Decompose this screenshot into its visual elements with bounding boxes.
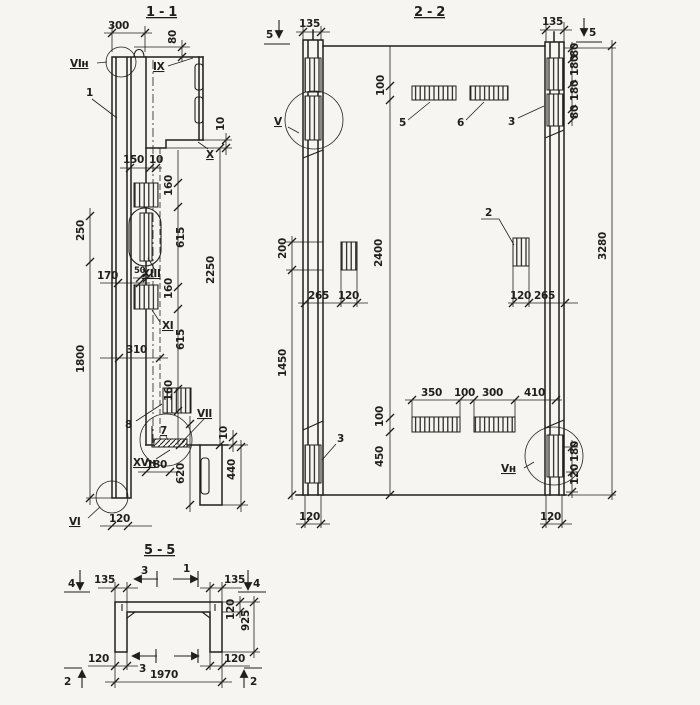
dim-180: 180 (146, 459, 167, 471)
label-3-bottom: 3 (337, 433, 344, 445)
label-XI: XI (162, 320, 173, 332)
label-2: 2 (485, 207, 492, 219)
dim-135-left: 135 (94, 574, 115, 586)
label-8: 8 (125, 419, 132, 431)
dim-450: 450 (374, 446, 386, 467)
dim-1970: 1970 (150, 669, 178, 681)
label-V: V (274, 116, 283, 128)
dim-180: 180 (569, 80, 581, 101)
dim-120-wall-right: 120 (224, 653, 245, 665)
dim-170: 170 (97, 270, 118, 282)
embed-plate-3 (305, 445, 321, 483)
cut-mark-2-left: 2 (64, 676, 71, 688)
label-VI: VI (69, 516, 80, 528)
embed-plate (547, 435, 563, 477)
cut-mark-5-right: 5 (589, 27, 596, 39)
dim-160: 160 (163, 278, 175, 299)
cut-mark-5-left: 5 (266, 29, 273, 41)
embed-plate-6 (470, 86, 508, 100)
dim-100: 100 (454, 387, 475, 399)
dim-300: 300 (108, 20, 129, 32)
label-VIn: VIн (70, 58, 88, 70)
embed-plate (140, 213, 152, 261)
dim-180-bottom: 180 (569, 441, 581, 462)
dim-100-top: 100 (375, 75, 387, 96)
label-X: X (206, 149, 214, 161)
dim-10-bracket: 10 (218, 426, 230, 440)
dim-2400: 2400 (373, 239, 385, 267)
dim-120: 120 (510, 290, 531, 302)
bar-mark-1: 1 (183, 563, 190, 575)
dim-10-step: 10 (215, 117, 227, 131)
dim-120: 120 (338, 290, 359, 302)
cut-mark-4-left: 4 (68, 578, 75, 590)
dim-120: 120 (109, 513, 130, 525)
dim-120-bottom-left: 120 (299, 511, 320, 523)
bar-mark-3-top: 3 (141, 565, 148, 577)
dim-300: 300 (482, 387, 503, 399)
embed-plate (341, 242, 357, 270)
dim-120-bottom-right: 120 (540, 511, 561, 523)
dim-180: 180 (569, 55, 581, 76)
dim-615: 615 (175, 227, 187, 248)
section-2-2-title: 2 - 2 (414, 5, 445, 20)
paper-background (0, 0, 700, 700)
dim-150: 150 (123, 154, 144, 166)
embed-plate (134, 285, 158, 309)
dim-135-left: 135 (299, 18, 320, 30)
dim-160: 160 (163, 380, 175, 401)
dim-100-bottom: 100 (374, 406, 386, 427)
dim-135-right: 135 (224, 574, 245, 586)
dim-1800: 1800 (75, 345, 87, 373)
dim-80: 80 (167, 30, 179, 44)
section-1-1-title: 1 - 1 (146, 5, 177, 20)
dim-80: 80 (569, 105, 581, 119)
dim-440: 440 (226, 459, 238, 480)
embed-plate (412, 417, 460, 432)
dim-250: 250 (75, 220, 87, 241)
dim-120-slab: 120 (225, 599, 237, 620)
embed-plate (547, 58, 563, 90)
label-6: 6 (457, 117, 464, 129)
label-5: 5 (399, 117, 406, 129)
dim-135-right: 135 (542, 16, 563, 28)
sections-drawing: 1 - 1 (0, 0, 700, 700)
cut-mark-2-right: 2 (250, 676, 257, 688)
dim-265: 265 (308, 290, 329, 302)
dim-200: 200 (277, 238, 289, 259)
label-Vn: Vн (501, 463, 516, 475)
dim-80: 80 (569, 43, 581, 57)
dim-160: 160 (163, 175, 175, 196)
embed-plate-3 (547, 94, 563, 126)
embed-plate (305, 96, 321, 140)
embed-plate-5 (412, 86, 456, 100)
label-3-top: 3 (508, 116, 515, 128)
embed-plate (134, 183, 158, 207)
embed-plate (474, 417, 515, 432)
dim-410: 410 (524, 387, 545, 399)
dim-265: 265 (534, 290, 555, 302)
dim-3280: 3280 (597, 232, 609, 260)
bar-mark-3-bottom: 3 (139, 663, 146, 675)
embed-plate-2 (513, 238, 529, 266)
label-IX: IX (153, 61, 165, 73)
dim-310: 310 (126, 344, 147, 356)
dim-120-bottom: 120 (569, 464, 581, 485)
dim-10: 10 (149, 154, 163, 166)
dim-1450: 1450 (277, 349, 289, 377)
cut-mark-4-right: 4 (253, 578, 260, 590)
label-1: 1 (86, 87, 93, 99)
dim-620: 620 (175, 463, 187, 484)
section-5-5-title: 5 - 5 (144, 543, 175, 558)
drawing-sheet: 1 - 1 (0, 0, 700, 700)
label-7: 7 (160, 425, 167, 437)
dim-615: 615 (175, 329, 187, 350)
label-VII: VII (197, 408, 212, 420)
dim-50: 50 (134, 266, 146, 276)
dim-350: 350 (421, 387, 442, 399)
embed-plate (305, 58, 321, 92)
dim-2250: 2250 (205, 256, 217, 284)
dim-925: 925 (240, 610, 252, 631)
dim-120-wall-left: 120 (88, 653, 109, 665)
